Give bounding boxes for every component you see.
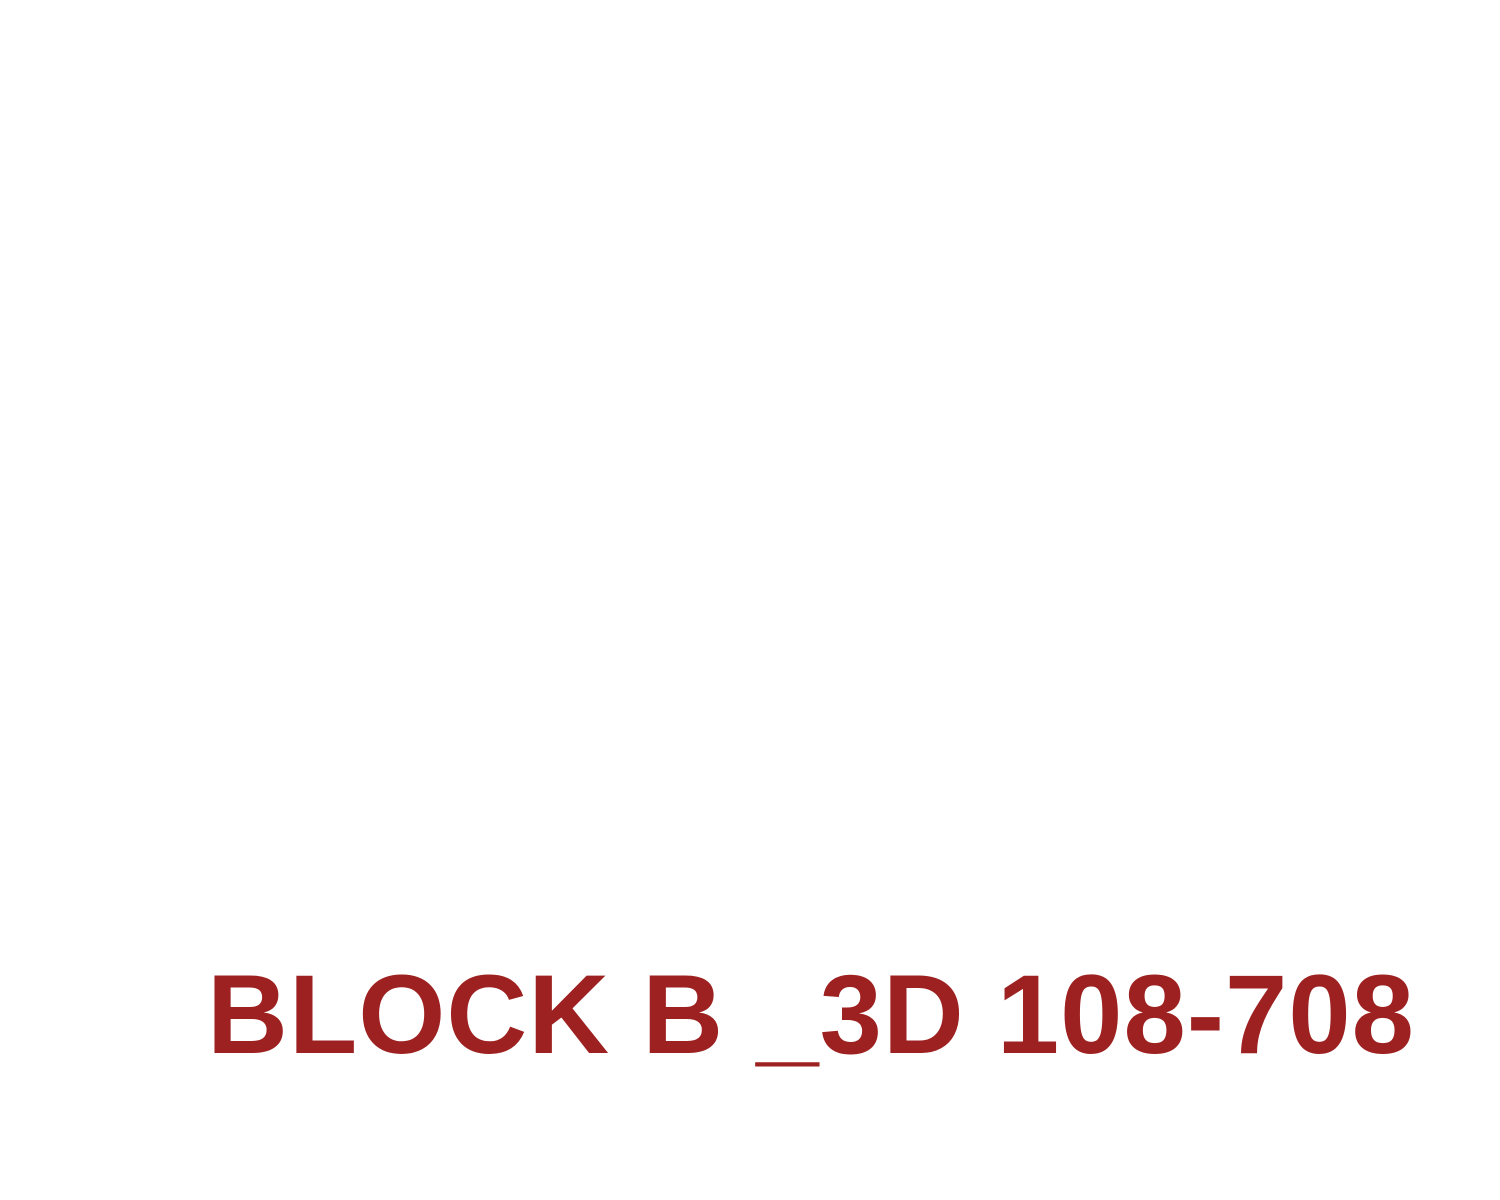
svg-text:BLOCK B _3D 108-708: BLOCK B _3D 108-708 [207, 952, 1415, 1077]
